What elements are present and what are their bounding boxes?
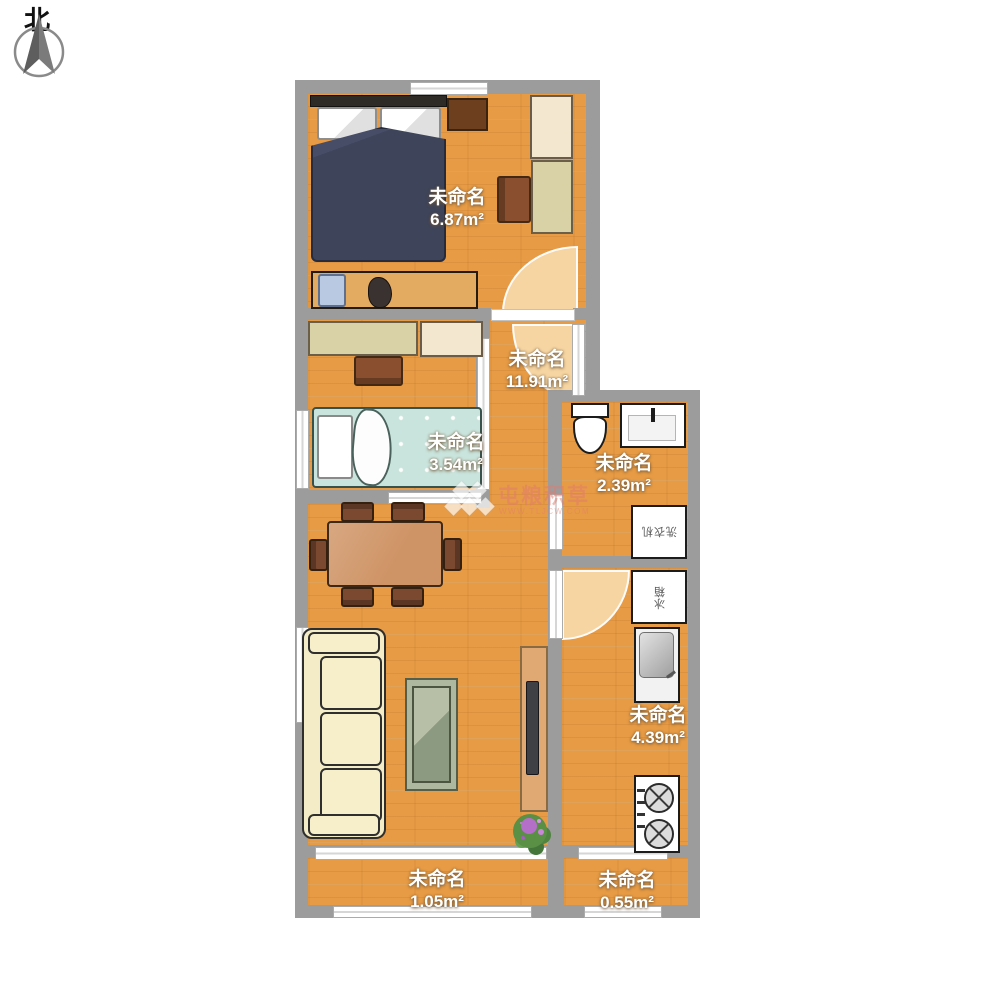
sofa-cushion [320,656,382,710]
window-bedroom-small-left [296,410,309,489]
fridge: 冰箱 [631,570,687,624]
room-label-balcony-left: 未命名 1.05m² [377,868,497,913]
wall-right-lower [688,390,700,918]
room-name: 未命名 [564,452,684,475]
compass-north-icon [10,12,68,78]
room-name: 未命名 [377,868,497,891]
faucet-icon [651,408,655,422]
nightstand [447,98,488,131]
room-area: 1.05m² [377,891,497,913]
dining-chair [391,502,425,522]
room-label-balcony-right: 未命名 0.55m² [567,869,687,914]
kitchen-sink-basin [639,632,674,678]
coffee-table [405,678,458,791]
watermark-url: WWW.TLJCW.COM [499,507,590,516]
dining-table [327,521,443,587]
sofa [302,628,386,839]
window-living-to-balcony [315,847,547,860]
room-name: 未命名 [397,186,517,209]
wall-bedroom-main-bottom [295,308,491,320]
wardrobe [530,95,573,159]
kitchen-sink-counter [634,627,680,703]
room-area: 6.87m² [397,209,517,231]
toilet [571,403,609,454]
sofa-armrest [308,814,380,836]
room-area: 4.39m² [598,727,718,749]
room-area: 0.55m² [567,892,687,914]
dining-chair [341,502,374,522]
toilet-bowl [573,416,607,454]
dining-chair [443,538,462,571]
stove-knob [637,825,645,828]
room-label-bedroom-small: 未命名 3.54m² [396,431,516,476]
bathroom-sink [620,403,686,448]
stove-knob [637,789,645,792]
desk-chair-small [354,356,403,386]
room-area: 11.91m² [477,371,597,393]
dining-chair [341,587,374,607]
laundry-basket [318,274,346,307]
stove-knob [637,813,645,816]
room-name: 未命名 [477,348,597,371]
door-opening-bedroom-main [491,309,575,321]
gas-stove [634,775,680,853]
room-area: 3.54m² [396,454,516,476]
double-bed-headboard [310,95,447,107]
washing-machine: 洗衣机 [631,505,687,559]
plant-flowers [521,818,537,834]
desk-main-bedroom [531,160,573,234]
single-bed-pillow [317,415,353,479]
stove-burner [644,783,674,813]
sofa-cushion [320,712,382,766]
fridge-label: 冰箱 [653,585,666,609]
coffee-table-glass [412,686,451,783]
desk-small-bedroom [308,321,418,356]
room-name: 未命名 [567,869,687,892]
washing-machine-label: 洗衣机 [641,524,677,540]
floor-plan-canvas: 北 [0,0,1000,1000]
room-name: 未命名 [598,704,718,727]
sofa-armrest [308,632,380,654]
bag [368,277,392,308]
room-label-hall-living: 未命名 11.91m² [477,348,597,393]
dining-chair [391,587,424,607]
kitchen-door-panel [549,570,563,639]
watermark-title: 屯粮积草 [498,480,590,510]
tv [526,681,539,775]
watermark: 屯粮积草 WWW.TLJCW.COM [446,480,566,525]
window-bedroom-main-top [410,82,488,95]
room-label-kitchen: 未命名 4.39m² [598,704,718,749]
stove-burner [644,819,674,849]
room-label-bedroom-main: 未命名 6.87m² [397,186,517,231]
dining-chair [309,539,328,571]
room-name: 未命名 [396,431,516,454]
shelf-cabinet [420,321,483,357]
stove-knob [637,801,645,804]
